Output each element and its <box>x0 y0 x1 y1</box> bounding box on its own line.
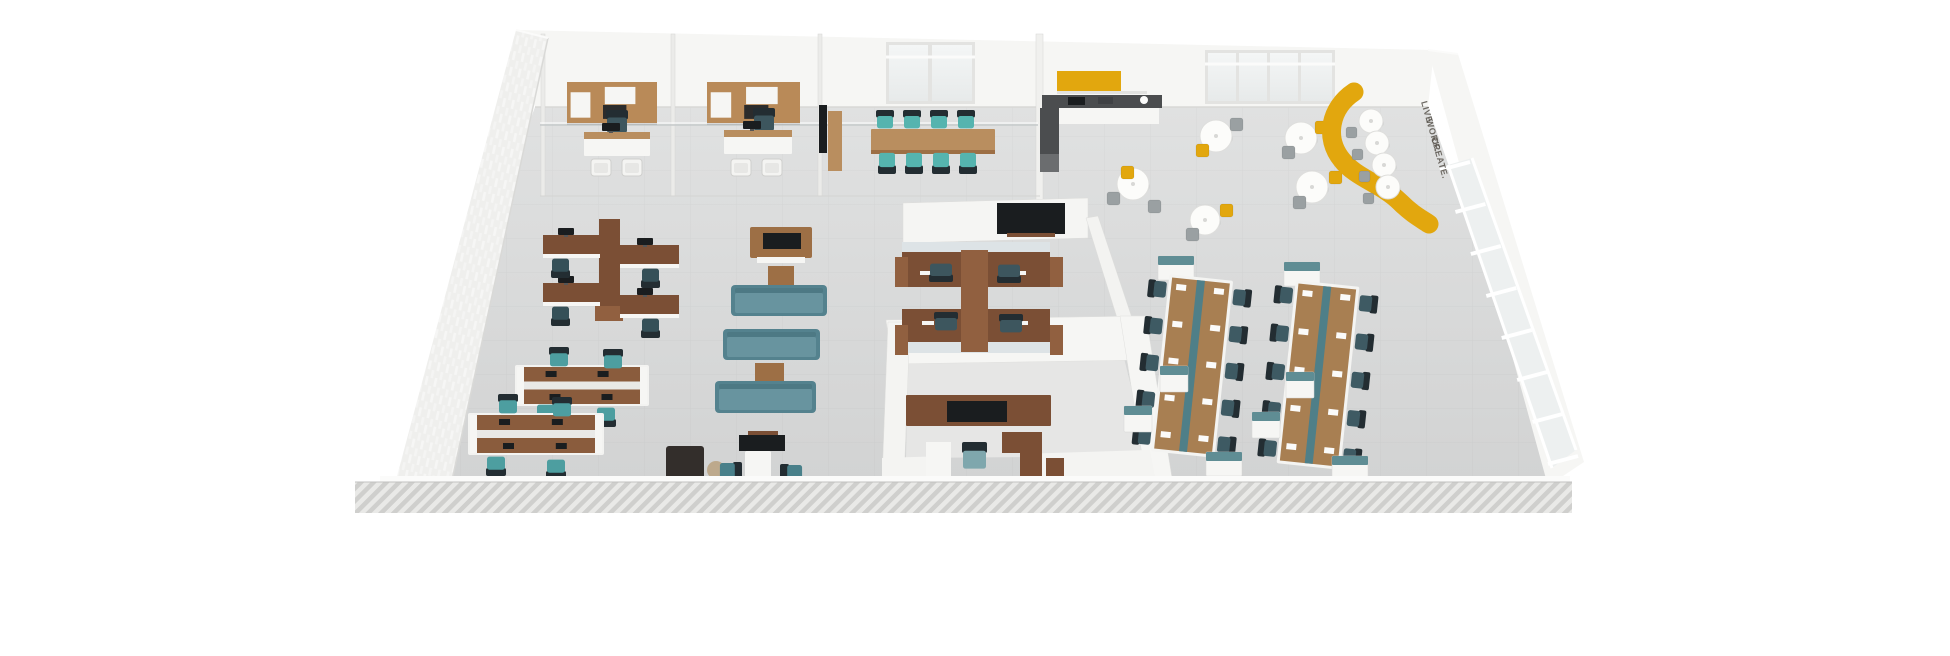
bench-item <box>595 415 602 453</box>
hatch-strip <box>355 482 1572 513</box>
rect-item <box>595 306 623 321</box>
cafechair-item <box>1329 171 1342 184</box>
monitor-item <box>637 238 653 245</box>
bench-item <box>640 367 647 404</box>
rect-item <box>1007 233 1055 237</box>
sofa-item <box>735 288 823 293</box>
storage-item <box>1332 456 1368 465</box>
bench-item <box>598 371 609 377</box>
cafechair-item <box>1121 166 1134 179</box>
bench-item <box>517 367 524 404</box>
cafetable-item <box>1310 185 1314 189</box>
monitor-item <box>643 295 647 297</box>
chair-item <box>603 349 623 368</box>
sofa-item <box>727 337 816 357</box>
monitor-item <box>564 283 568 285</box>
rect-item <box>768 266 794 288</box>
chair-item <box>552 397 572 416</box>
storage-item <box>1124 406 1152 415</box>
chair-item <box>876 110 894 128</box>
chair-item <box>957 110 975 128</box>
chair-item <box>929 264 953 282</box>
rect-item <box>620 245 679 266</box>
bench-item <box>556 443 567 449</box>
bench-item <box>602 394 613 400</box>
cafetable-item <box>1369 119 1373 123</box>
rect-item <box>922 321 934 325</box>
rect-item <box>819 105 827 153</box>
rect-item <box>543 235 600 256</box>
cafechair-item <box>1363 193 1374 204</box>
bench-item <box>476 430 596 438</box>
storage-item <box>1286 372 1314 381</box>
cafechair-item <box>1196 144 1209 157</box>
rect-item <box>543 302 600 306</box>
rect-item <box>1057 91 1147 94</box>
monitor-item <box>609 131 613 133</box>
chair-item <box>962 442 987 469</box>
chair-item <box>934 312 958 330</box>
chair-item <box>486 457 506 476</box>
rect-item <box>961 250 988 352</box>
storage-item <box>1284 262 1320 271</box>
monitor-item <box>743 121 761 129</box>
rect-item <box>620 264 679 268</box>
cafechair-item <box>1346 127 1357 138</box>
cafechair-item <box>1186 228 1199 241</box>
bench-item <box>499 419 510 425</box>
bench-item <box>470 415 477 453</box>
monitor-item <box>564 235 568 237</box>
rect-item <box>1068 97 1085 105</box>
chair-item <box>551 259 570 278</box>
shelf-item <box>605 87 636 104</box>
monitor-item <box>558 228 574 235</box>
rect-item <box>543 254 600 258</box>
cafetable-item <box>1203 218 1207 222</box>
chair-item <box>997 265 1021 283</box>
chair-item <box>999 314 1023 332</box>
rect-item <box>1040 154 1059 172</box>
rect-item <box>724 130 792 137</box>
rect-item <box>895 325 908 355</box>
cafechair-item <box>1282 146 1295 159</box>
cafetable-item <box>1386 185 1390 189</box>
rect-item <box>1057 71 1121 91</box>
sofa-item <box>735 293 823 313</box>
monitor-item <box>643 245 647 247</box>
gchair-item <box>625 163 639 173</box>
gchair-item <box>765 163 779 173</box>
gchair-item <box>594 163 608 173</box>
floorplan-render: LIVE WORK. CREATE. <box>0 0 1950 656</box>
sofa-item <box>719 389 812 410</box>
rect-item <box>1020 432 1042 480</box>
monitor-item <box>637 288 653 295</box>
monitor-item <box>602 123 620 131</box>
chair-item <box>932 153 950 174</box>
floorplan-svg: LIVE WORK. CREATE. <box>0 0 1950 656</box>
rect-item <box>1045 108 1159 124</box>
cafechair-item <box>1352 149 1363 160</box>
chair-item <box>549 347 569 366</box>
cafechair-item <box>1293 196 1306 209</box>
cafetable-item <box>1131 182 1135 186</box>
cafechair-item <box>1359 171 1370 182</box>
shelf-item <box>571 92 591 117</box>
bench-item <box>523 382 641 390</box>
chair-item <box>641 319 660 338</box>
gchair-item <box>734 163 748 173</box>
rect-item <box>543 283 600 304</box>
cafechair-item <box>1148 200 1161 213</box>
chair-item <box>641 269 660 288</box>
rect-item <box>947 401 1007 422</box>
cafechair-item <box>1230 118 1243 131</box>
cafetable-item <box>1299 136 1303 140</box>
rect-item <box>1121 71 1147 91</box>
chair-item <box>930 110 948 128</box>
cafechair-item <box>1220 204 1233 217</box>
monitor-item <box>750 129 754 131</box>
chair-item <box>498 394 518 413</box>
window-conference <box>886 42 975 104</box>
rect-item <box>763 233 801 249</box>
cafetable-item <box>1214 134 1218 138</box>
slab-edge <box>355 476 1572 513</box>
rect-item <box>997 203 1065 234</box>
sofa-item <box>719 384 812 389</box>
bench-item <box>546 371 557 377</box>
bench-item <box>503 443 514 449</box>
rect-item <box>584 132 650 139</box>
cafetable-item <box>1375 141 1379 145</box>
rect-item <box>620 295 679 316</box>
rect-item <box>1050 257 1063 287</box>
chair-item <box>905 153 923 174</box>
sofa-item <box>727 332 816 337</box>
zone-tv-partition <box>997 203 1065 237</box>
chair-item <box>551 307 570 326</box>
rect-item <box>1050 325 1063 355</box>
rect-item <box>620 314 679 318</box>
chair-item <box>959 153 977 174</box>
circle-item <box>1140 96 1148 104</box>
rect-item <box>895 257 908 287</box>
storage-item <box>1252 412 1280 421</box>
rect-item <box>739 435 785 451</box>
chair-item <box>903 110 921 128</box>
rect-item <box>1098 97 1113 104</box>
rect-item <box>828 111 842 171</box>
storage-item <box>1206 452 1242 461</box>
rect-item <box>757 257 805 263</box>
shelf-item <box>711 92 731 117</box>
shelf-item <box>746 87 778 104</box>
storage-item <box>1160 366 1188 375</box>
bench-item <box>552 419 563 425</box>
chair-item <box>878 153 896 174</box>
cafechair-item <box>1107 192 1120 205</box>
window-cafe <box>1205 50 1335 104</box>
storage-item <box>1158 256 1194 265</box>
cafetable-item <box>1382 163 1386 167</box>
rect-item <box>599 219 620 317</box>
